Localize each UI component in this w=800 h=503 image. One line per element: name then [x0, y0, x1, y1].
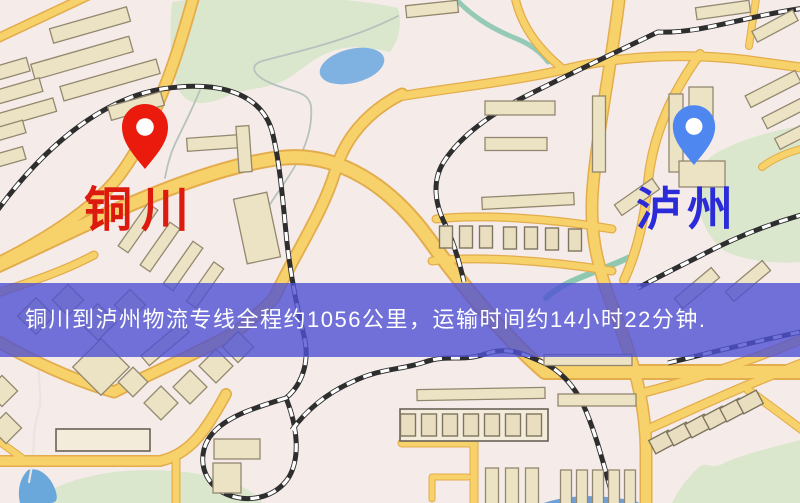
destination-city-label: 泸州 — [636, 173, 738, 239]
route-info-text: 铜川到泸州物流专线全程约1056公里，运输时间约14小时22分钟. — [0, 283, 800, 357]
origin-city-label: 铜川 — [84, 170, 198, 240]
map-view: 铜川 泸州 铜川到泸州物流专线全程约1056公里，运输时间约14小时22分钟. — [0, 0, 800, 503]
map-canvas — [0, 0, 800, 503]
route-info-banner: 铜川到泸州物流专线全程约1056公里，运输时间约14小时22分钟. — [0, 283, 800, 357]
